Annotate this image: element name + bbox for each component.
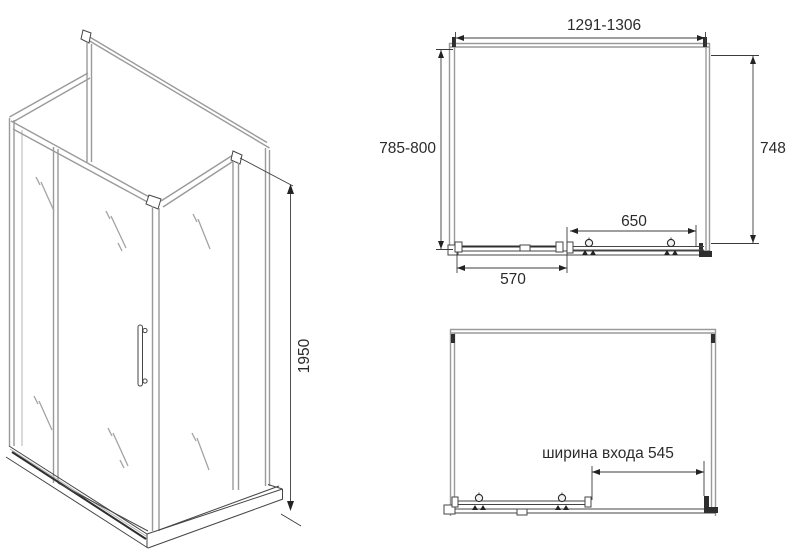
open-door-bar [452, 493, 591, 511]
shower-tray-base [6, 446, 283, 548]
front-plan-view: ширина входа 545 [444, 329, 718, 516]
perspective-view: 1950 [6, 30, 313, 548]
wall-profile-clip [711, 334, 715, 343]
entrance-width-dimension-label: ширина входа 545 [542, 445, 674, 462]
door-panel-dimension-label: 650 [621, 213, 647, 230]
dimension-side-panel: 748 [711, 56, 786, 244]
door-handle [138, 325, 147, 386]
sliding-door-bar [567, 238, 704, 256]
dimension-width: 1291-1306 [456, 17, 706, 46]
glass-hatch-marks [34, 177, 210, 470]
left-side-panel [10, 73, 91, 446]
back-panel [81, 30, 270, 486]
right-side-panel [161, 151, 242, 490]
dimension-depth: 785-800 [379, 50, 453, 250]
enclosure-outline [448, 37, 712, 257]
fixed-panel-dimension-label: 570 [500, 271, 526, 288]
shower-technical-drawing: 1950 [0, 0, 797, 554]
wall-profile-clip [451, 334, 455, 343]
height-dimension-label: 1950 [296, 338, 313, 373]
drawing-canvas: 1950 [0, 0, 797, 554]
depth-dimension-label: 785-800 [379, 140, 436, 157]
width-dimension-label: 1291-1306 [567, 17, 641, 34]
dimension-fixed-panel: 570 [457, 227, 567, 288]
enclosure-outline [444, 329, 718, 516]
side-panel-dimension-label: 748 [760, 140, 786, 157]
top-plan-view: 1291-1306 785-800 748 650 [379, 17, 786, 288]
dimension-height: 1950 [240, 158, 313, 526]
dimension-entrance-width: ширина входа 545 [542, 445, 704, 500]
track-clip [517, 509, 527, 515]
